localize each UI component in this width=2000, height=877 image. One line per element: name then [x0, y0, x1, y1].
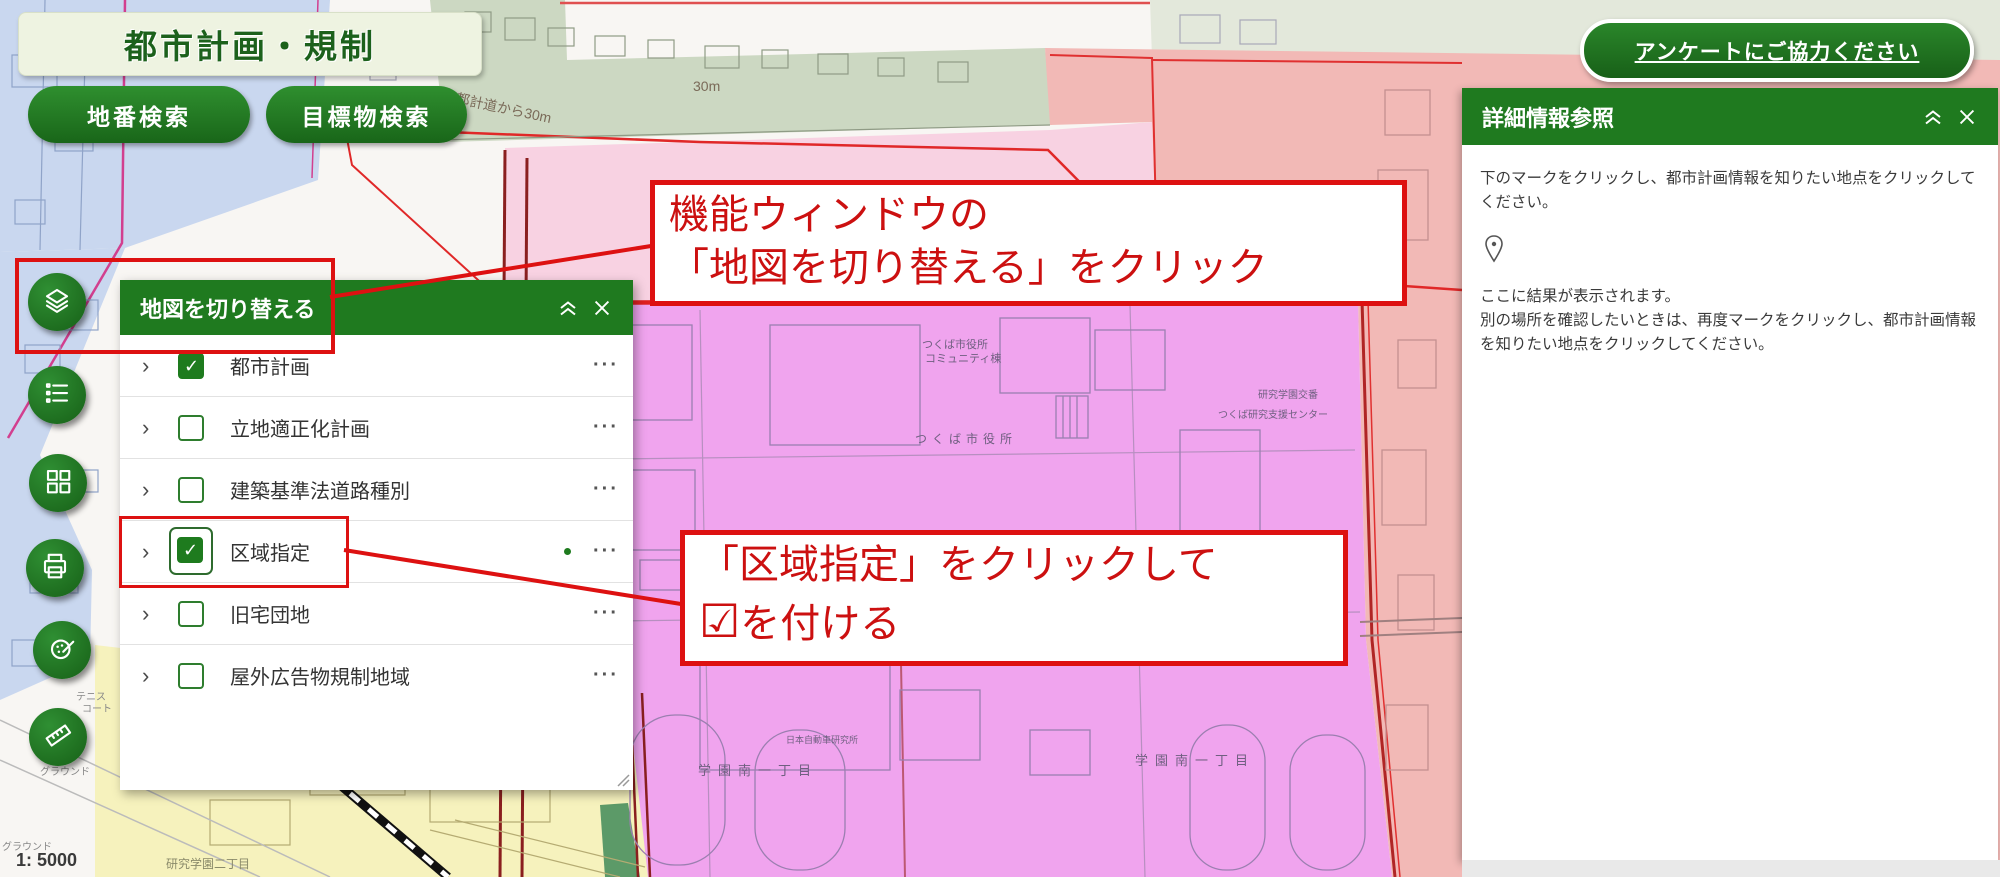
lot-number-search-button[interactable]: 地番検索 [28, 86, 250, 143]
switch-map-panel-header: 地図を切り替える [120, 280, 633, 335]
checkbox-focus-ring [169, 527, 213, 575]
detail-info-panel-header: 詳細情報参照 [1462, 88, 1998, 145]
layer-checkbox[interactable] [177, 537, 203, 563]
ruler-icon [43, 720, 73, 755]
layer-checkbox[interactable] [178, 477, 204, 503]
layer-label: 屋外広告物規制地域 [230, 661, 410, 690]
resize-handle[interactable] [614, 771, 630, 787]
layer-row-kuikishitei[interactable]: 区域指定 [120, 520, 633, 582]
switch-map-panel-title: 地図を切り替える [140, 292, 551, 324]
layer-options-icon[interactable] [593, 416, 619, 439]
palette-icon [47, 633, 77, 668]
print-button[interactable] [26, 539, 84, 597]
layer-row-ritchitekiseika[interactable]: 立地適正化計画 [120, 396, 633, 458]
legend-button[interactable] [28, 366, 86, 424]
layer-row-toshikeikaku[interactable]: 都市計画 [120, 335, 633, 396]
layer-options-icon[interactable] [593, 540, 619, 563]
printer-icon [40, 551, 70, 586]
layers-icon [42, 285, 72, 320]
page-title-card: 都市計画・規制 [18, 12, 482, 76]
close-icon[interactable] [585, 291, 619, 325]
expand-chevron-icon[interactable] [142, 603, 149, 625]
layer-status-dot [564, 548, 571, 555]
layer-options-icon[interactable] [593, 664, 619, 687]
detail-info-panel: 詳細情報参照 下のマークをクリックし、都市計画情報を知りたい地点をクリックしてく… [1462, 88, 1998, 860]
measure-button[interactable] [29, 708, 87, 766]
layer-label: 旧宅団地 [230, 599, 310, 628]
map-scale: 1: 5000 [16, 850, 77, 871]
switch-map-panel: 地図を切り替える 都市計画 立地適正化計画 [120, 280, 633, 790]
layer-row-kenchikukijunho[interactable]: 建築基準法道路種別 [120, 458, 633, 520]
layer-label: 都市計画 [230, 351, 310, 380]
list-icon [42, 378, 72, 413]
switch-map-button[interactable] [28, 273, 86, 331]
map-pin-icon[interactable] [1484, 235, 1504, 271]
layer-options-icon[interactable] [593, 602, 619, 625]
collapse-icon[interactable] [551, 291, 585, 325]
expand-chevron-icon[interactable] [142, 479, 149, 501]
detail-info-panel-title: 詳細情報参照 [1482, 101, 1916, 133]
landmark-search-button[interactable]: 目標物検索 [266, 86, 467, 143]
grid-icon [43, 466, 73, 501]
detail-info-body: 下のマークをクリックし、都市計画情報を知りたい地点をクリックしてください。 ここ… [1462, 145, 1998, 387]
expand-chevron-icon[interactable] [142, 665, 149, 687]
expand-chevron-icon[interactable] [142, 355, 149, 377]
close-icon[interactable] [1950, 100, 1984, 134]
expand-chevron-icon[interactable] [142, 541, 149, 563]
layer-label: 建築基準法道路種別 [230, 475, 410, 504]
expand-chevron-icon[interactable] [142, 417, 149, 439]
survey-button[interactable]: アンケートにご協力ください [1580, 19, 1974, 82]
layer-row-kyutakudanchi[interactable]: 旧宅団地 [120, 582, 633, 644]
layer-label: 立地適正化計画 [230, 413, 370, 442]
collapse-icon[interactable] [1916, 100, 1950, 134]
app-window: 都計道から30m 30m つくば市役所 コミュニティ棟 つくば市役所 研究学園交… [0, 0, 2000, 877]
layer-checkbox[interactable] [178, 353, 204, 379]
layer-options-icon[interactable] [593, 354, 619, 377]
info-result-hint: ここに結果が表示されます。 [1480, 285, 1980, 309]
layer-options-icon[interactable] [593, 478, 619, 501]
layer-checkbox[interactable] [178, 601, 204, 627]
layer-checkbox[interactable] [178, 663, 204, 689]
layer-checkbox[interactable] [178, 415, 204, 441]
layer-list: 都市計画 立地適正化計画 建築基準法道路種別 [120, 335, 633, 790]
info-result-hint: 別の場所を確認したいときは、再度マークをクリックし、都市計画情報を知りたい地点を… [1480, 309, 1980, 357]
draw-button[interactable] [33, 621, 91, 679]
survey-button-label: アンケートにご協力ください [1635, 36, 1920, 66]
map-tiles-button[interactable] [29, 454, 87, 512]
window-edge [1462, 860, 2000, 877]
layer-row-okugaikokoku[interactable]: 屋外広告物規制地域 [120, 644, 633, 706]
page-title: 都市計画・規制 [124, 20, 376, 68]
layer-label: 区域指定 [230, 537, 310, 566]
info-instruction: 下のマークをクリックし、都市計画情報を知りたい地点をクリックしてください。 [1480, 167, 1980, 215]
